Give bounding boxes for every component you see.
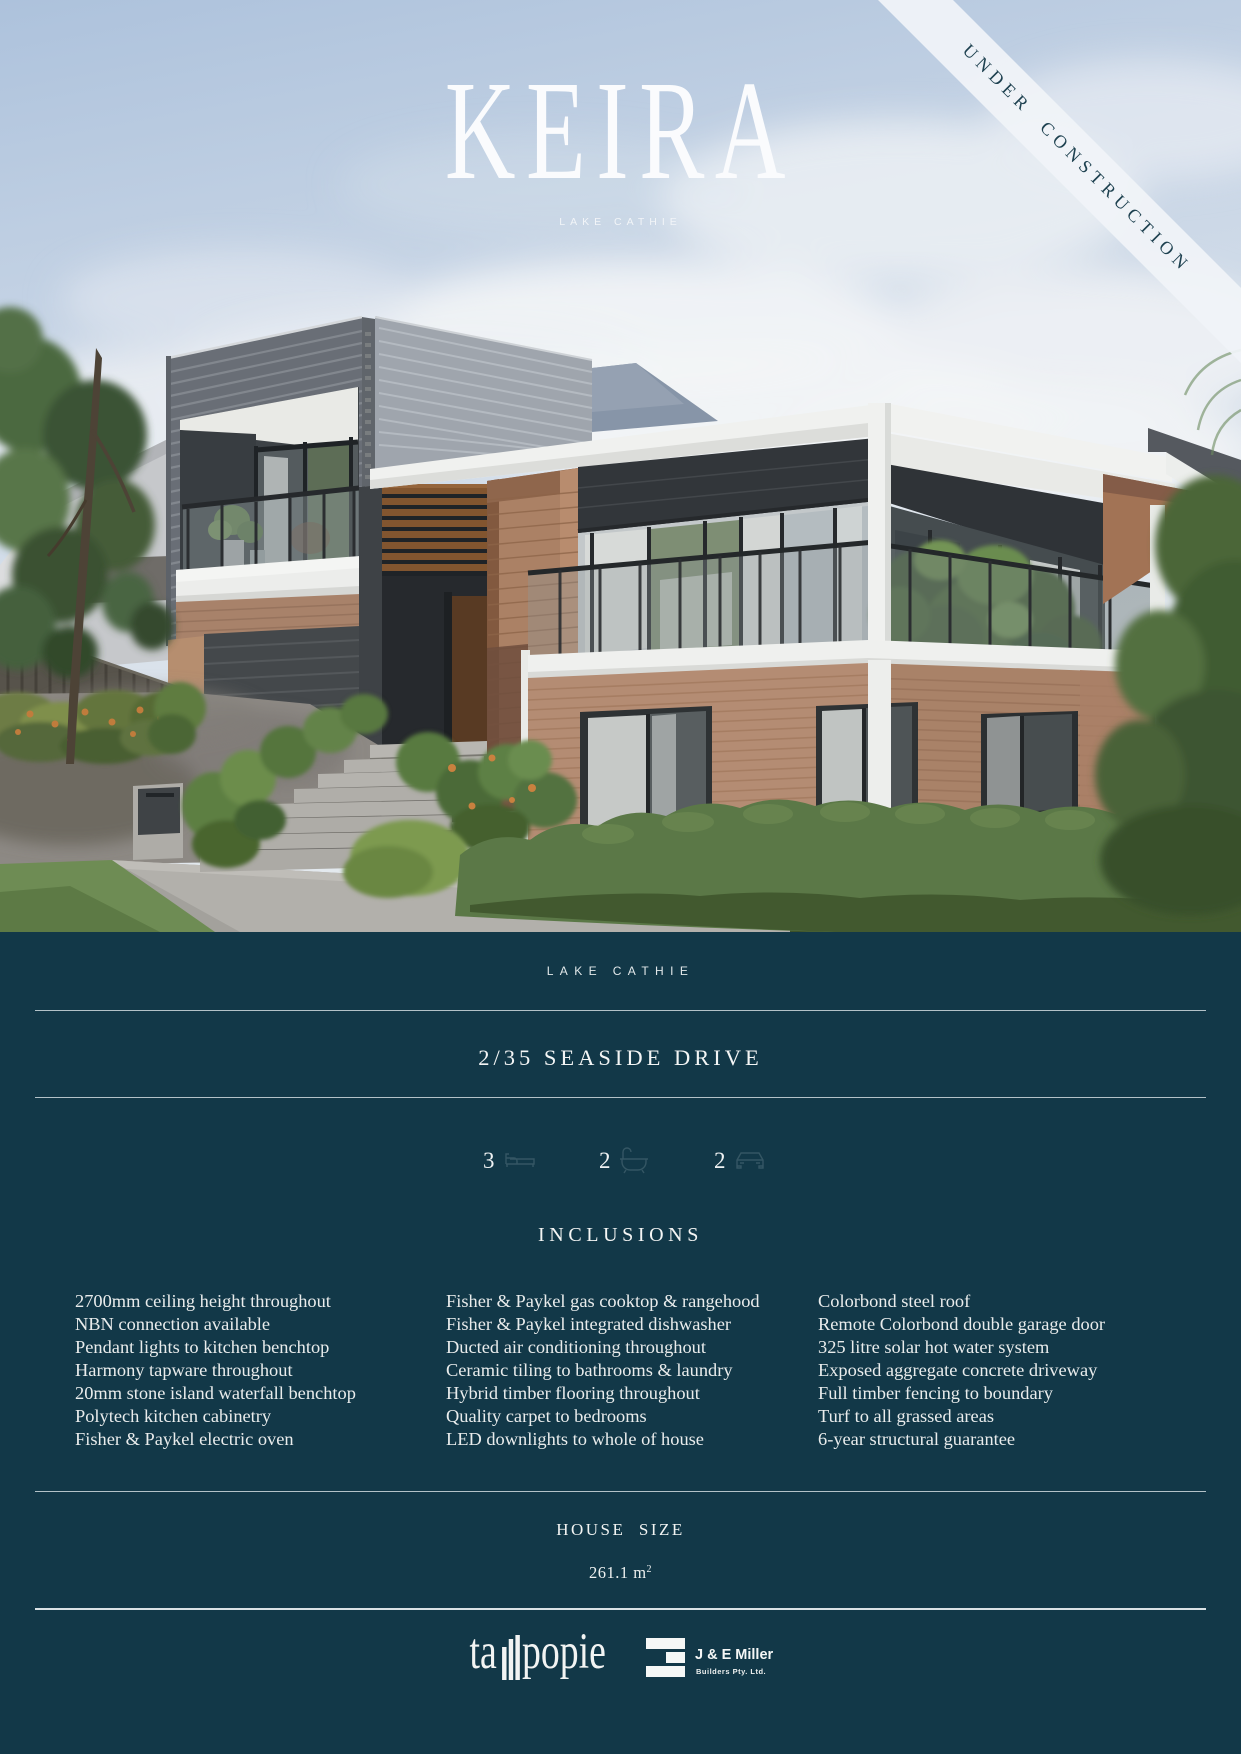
svg-text:ta: ta — [470, 1625, 497, 1679]
svg-text:popie: popie — [522, 1625, 606, 1679]
svg-text:2: 2 — [714, 1148, 726, 1173]
svg-text:Builders Pty. Ltd.: Builders Pty. Ltd. — [696, 1667, 766, 1676]
svg-text:J & E Miller: J & E Miller — [695, 1647, 774, 1663]
svg-text:2: 2 — [599, 1148, 611, 1173]
svg-text:3: 3 — [483, 1148, 495, 1173]
